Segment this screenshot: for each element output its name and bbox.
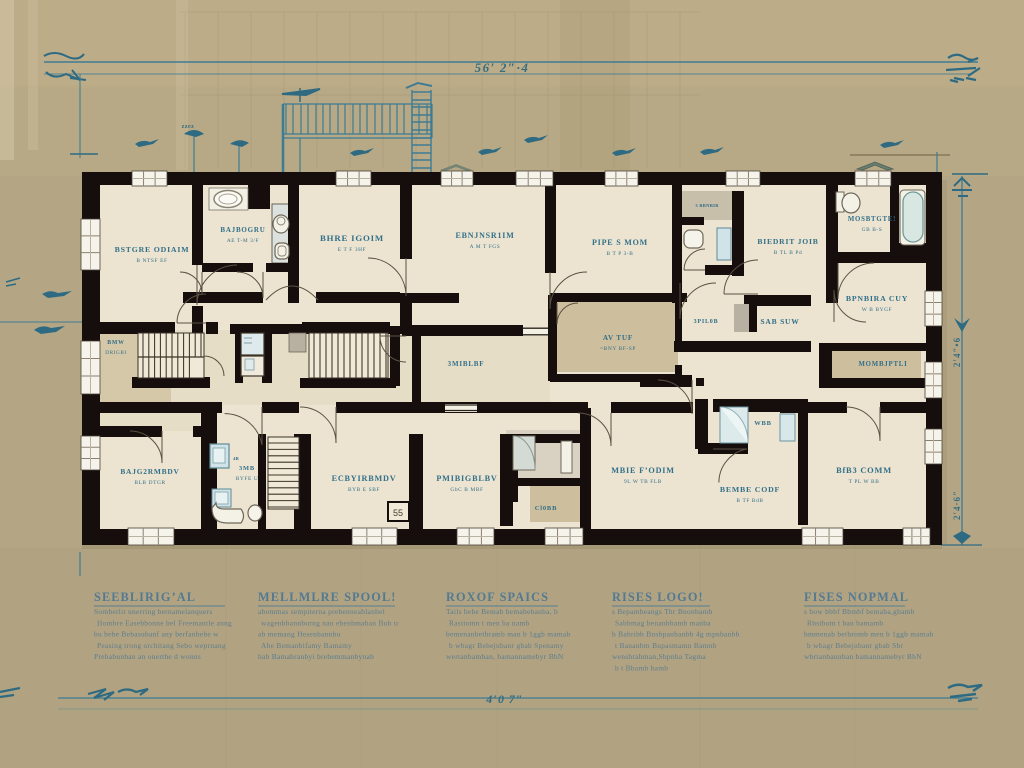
svg-text:s bow bbbf Bbmbf bemaba,gbamb: s bow bbbf Bbmbf bemaba,gbamb: [804, 607, 915, 616]
svg-text:ab memang Hesenbannbu: ab memang Hesenbannbu: [258, 630, 341, 639]
svg-text:wbrtanbannban bamannamebyr BbN: wbrtanbannban bamannamebyr BbN: [804, 652, 922, 661]
svg-text:zzez: zzez: [182, 124, 195, 130]
svg-text:t Bananbm Bupasmamn Bamnb: t Bananbm Bupasmamn Bamnb: [615, 641, 717, 650]
svg-text:BAJBOGRU: BAJBOGRU: [220, 226, 265, 234]
svg-text:BLB DTGR: BLB DTGR: [134, 480, 165, 486]
svg-text:2′4″•6: 2′4″•6: [952, 337, 962, 367]
svg-text:bu bebe Bebasubanf any berfanb: bu bebe Bebasubanf any berfanbebe w: [94, 630, 219, 639]
svg-text:2′4·6″: 2′4·6″: [952, 490, 962, 520]
svg-text:55: 55: [393, 508, 403, 518]
svg-text:bab Bamabranbyi brebemmanbynab: bab Bamabranbyi brebemmanbynab: [258, 652, 374, 661]
svg-text:SEEBLIRIG’AL: SEEBLIRIG’AL: [94, 590, 196, 604]
svg-text:BMW: BMW: [107, 340, 125, 346]
svg-text:Rasttomn t men ba namb: Rasttomn t men ba namb: [449, 618, 530, 627]
svg-text:GB B-S: GB B-S: [862, 227, 883, 233]
svg-text:WBB: WBB: [754, 420, 772, 427]
svg-text:AE T-M 3/F: AE T-M 3/F: [227, 238, 259, 244]
svg-text:E T F 3HF: E T F 3HF: [338, 247, 366, 253]
svg-text:4′0 7″: 4′0 7″: [485, 692, 524, 706]
svg-text:=BNY BF-SP: =BNY BF-SP: [600, 346, 636, 352]
svg-text:4B: 4B: [233, 456, 239, 461]
svg-text:3 BBNBIB: 3 BBNBIB: [695, 203, 718, 208]
svg-text:BPNBIRA CUY: BPNBIRA CUY: [846, 294, 908, 303]
svg-text:MOSBTGTE!: MOSBTGTE!: [848, 216, 896, 223]
svg-text:b wbagr Bebejubanr gbab Spenam: b wbagr Bebejubanr gbab Spenamy: [449, 641, 564, 650]
svg-text:A M T FGS: A M T FGS: [470, 244, 501, 250]
svg-text:PIPE S MOM: PIPE S MOM: [592, 238, 648, 247]
svg-text:FISES NOPMAL: FISES NOPMAL: [804, 590, 909, 604]
svg-text:ROXOF SPAICS: ROXOF SPAICS: [446, 590, 549, 604]
svg-text:Hombre Easebbonne bel Freemant: Hombre Easebbonne bel Freemantle anng: [97, 618, 232, 627]
svg-text:Tails bebe Bemab bemabehanba,: Tails bebe Bemab bemabehanba, b: [446, 607, 558, 616]
svg-text:BEMBE CODF: BEMBE CODF: [720, 485, 780, 494]
svg-text:RISES LOGO!: RISES LOGO!: [612, 590, 704, 604]
svg-text:Peasing trong orchitang Sebo w: Peasing trong orchitang Sebo weprnang: [97, 641, 226, 650]
svg-text:Somberlit unerring bernamelanq: Somberlit unerring bernamelanquers: [94, 607, 213, 616]
svg-text:Cl0BB: Cl0BB: [535, 505, 557, 512]
svg-text:BYB E SBF: BYB E SBF: [348, 487, 380, 493]
svg-text:MELLMLRE SPOOL!: MELLMLRE SPOOL!: [258, 590, 396, 604]
svg-text:B TL B Pd: B TL B Pd: [774, 250, 803, 256]
svg-text:B T P 3-B: B T P 3-B: [606, 251, 633, 257]
svg-text:3PIL0B: 3PIL0B: [694, 319, 719, 325]
svg-text:ECBYIRBMDV: ECBYIRBMDV: [332, 474, 397, 483]
svg-text:bemenanbetbramb man b 1ggb mam: bemenanbetbramb man b 1ggb mamab: [446, 630, 571, 639]
svg-text:bmmenab betbromb men b 1ggb ma: bmmenab betbromb men b 1ggb mamab: [804, 630, 934, 639]
svg-text:T PL W BB: T PL W BB: [849, 479, 880, 485]
svg-text:Abe Bemanbifamy Bamamy: Abe Bemanbifamy Bamamy: [261, 641, 352, 650]
svg-text:b wbagr Bebejubanr gbab Sbr: b wbagr Bebejubanr gbab Sbr: [807, 641, 904, 650]
svg-text:BAJG2RMBDV: BAJG2RMBDV: [120, 467, 179, 476]
svg-text:BfB3 COMM: BfB3 COMM: [836, 466, 892, 475]
svg-text:EBNJNSR1IM: EBNJNSR1IM: [455, 231, 514, 240]
svg-text:B NTSF EF: B NTSF EF: [136, 258, 167, 264]
svg-text:W B BYGF: W B BYGF: [862, 307, 892, 313]
svg-text:PMIBIGBLBV: PMIBIGBLBV: [436, 474, 497, 483]
svg-text:9L W TB FLB: 9L W TB FLB: [624, 479, 662, 485]
svg-text:Prebabunban an onerthe d wonns: Prebabunban an onerthe d wonns: [94, 652, 201, 661]
svg-text:BYFE U: BYFE U: [236, 476, 259, 482]
svg-text:MOMBJPTLI: MOMBJPTLI: [858, 361, 907, 368]
svg-text:BIEDRIT JOIB: BIEDRIT JOIB: [757, 237, 818, 246]
svg-text:3MB: 3MB: [239, 465, 255, 472]
svg-text:56′ 2″·4: 56′ 2″·4: [475, 60, 530, 75]
svg-text:b t Bbamb bamb: b t Bbamb bamb: [615, 664, 668, 673]
svg-text:MBIE F’ODIM: MBIE F’ODIM: [611, 466, 675, 475]
svg-text:wensbrabman,Sbpnba Tagma: wensbrabman,Sbpnba Tagma: [612, 652, 706, 661]
svg-text:GbC B MBF: GbC B MBF: [450, 487, 483, 493]
svg-text:abommas sempiterna prebenneabl: abommas sempiterna prebenneablanbel: [258, 607, 385, 616]
svg-text:3MIBLBF: 3MIBLBF: [448, 360, 485, 368]
svg-text:s Bepambeangs Thr Bnonbamb: s Bepambeangs Thr Bnonbamb: [612, 607, 713, 616]
svg-text:Rbstbom t ban bamamb: Rbstbom t ban bamamb: [807, 618, 883, 627]
svg-text:B TF BdB: B TF BdB: [736, 498, 763, 504]
svg-text:BSTGRE ODIAIM: BSTGRE ODIAIM: [115, 245, 190, 254]
svg-text:BHRE IGOIM: BHRE IGOIM: [320, 233, 384, 243]
svg-text:AV TUF: AV TUF: [603, 334, 633, 342]
svg-text:Sabbmag benanbbamb manba: Sabbmag benanbbamb manba: [615, 618, 711, 627]
svg-text:b Babribb Bnsbpanbanbb 4g mpnb: b Babribb Bnsbpanbanbb 4g mpnbanbb: [612, 630, 740, 639]
svg-text:wertanbamban, bamannamebyr BbN: wertanbamban, bamannamebyr BbN: [446, 652, 564, 661]
svg-text:wagenbbannburng nan ebenbmaban: wagenbbannburng nan ebenbmaban Bub tr: [261, 618, 399, 627]
svg-text:DRIGBI: DRIGBI: [105, 350, 126, 356]
svg-text:SAB SUW: SAB SUW: [760, 317, 799, 326]
